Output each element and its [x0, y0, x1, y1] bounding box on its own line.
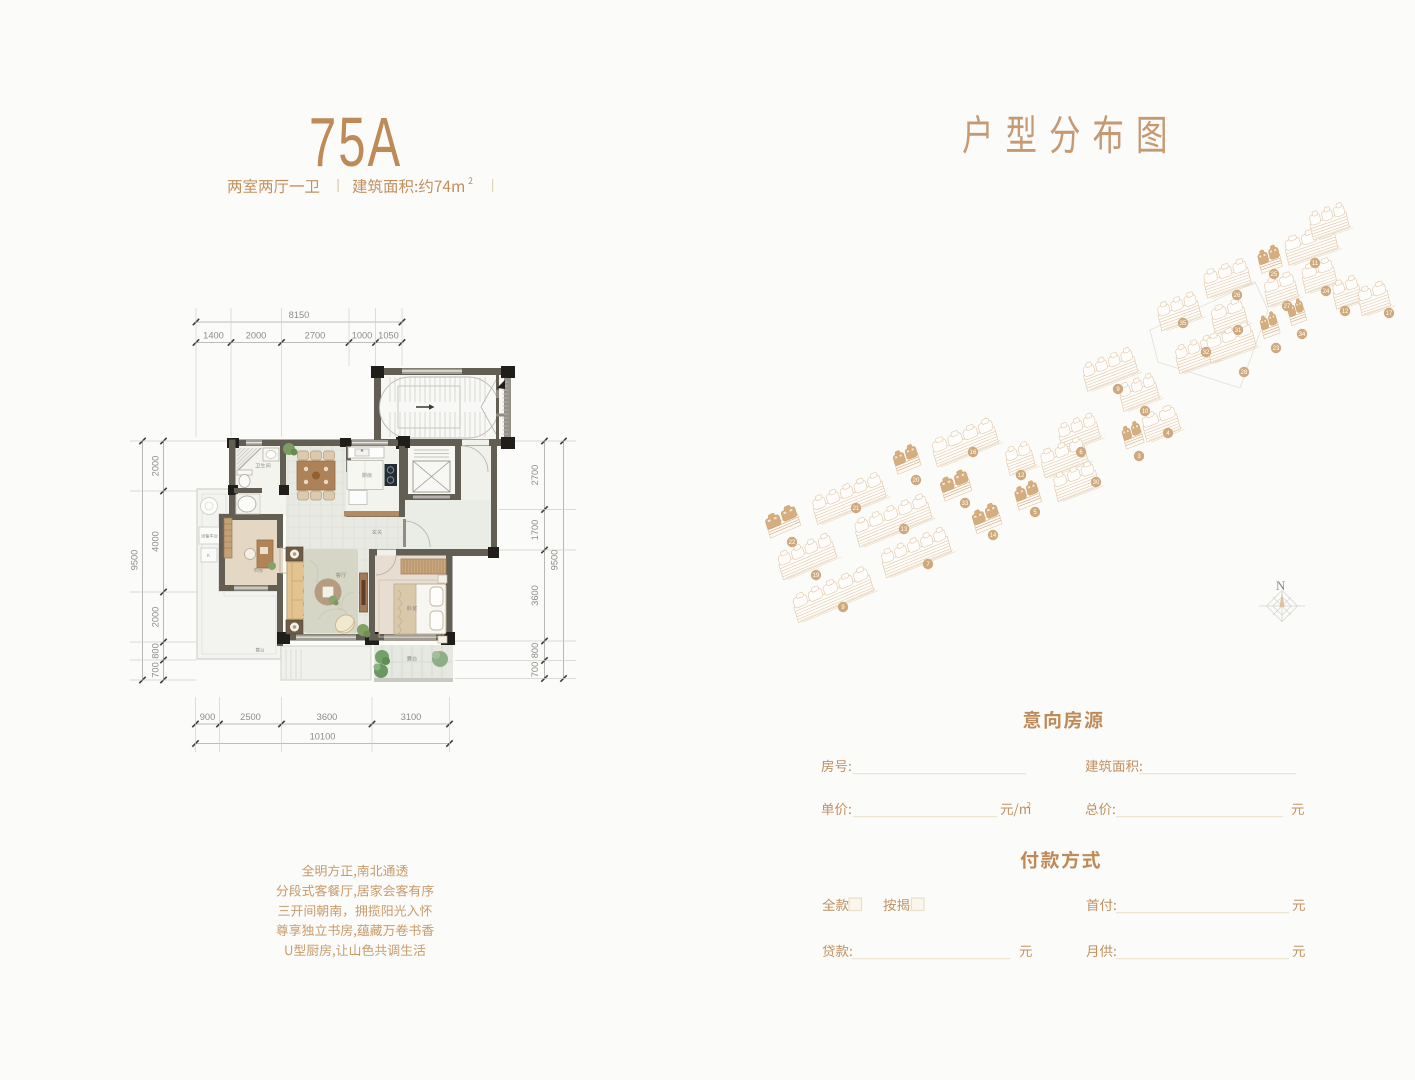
svg-text:12: 12: [1018, 473, 1025, 479]
svg-text:1700: 1700: [530, 520, 540, 541]
svg-text:12: 12: [1342, 309, 1349, 315]
svg-text:23: 23: [1273, 346, 1280, 352]
svg-text:10: 10: [1142, 409, 1149, 415]
svg-text:700: 700: [151, 662, 161, 678]
svg-text:9500: 9500: [550, 550, 560, 571]
svg-text:17: 17: [1386, 311, 1393, 317]
svg-text:32: 32: [1203, 350, 1210, 356]
svg-text:75A: 75A: [309, 104, 402, 181]
svg-text:10100: 10100: [310, 732, 336, 742]
svg-text:2000: 2000: [246, 331, 267, 341]
svg-text:3600: 3600: [530, 585, 540, 606]
svg-text:35: 35: [1180, 321, 1187, 327]
svg-text:800: 800: [151, 643, 161, 659]
svg-text:31: 31: [1235, 328, 1242, 334]
svg-text:13: 13: [901, 527, 908, 533]
svg-text:1050: 1050: [378, 331, 399, 341]
svg-text:1400: 1400: [203, 331, 224, 341]
svg-text:2700: 2700: [305, 331, 326, 341]
svg-text:16: 16: [970, 450, 977, 456]
svg-text:2000: 2000: [151, 607, 161, 628]
svg-text:27: 27: [1284, 304, 1291, 310]
svg-text:1000: 1000: [352, 331, 373, 341]
svg-text:20: 20: [913, 478, 920, 484]
svg-text:700: 700: [530, 662, 540, 678]
svg-text:14: 14: [990, 533, 997, 539]
svg-text:33: 33: [962, 501, 969, 507]
svg-text:800: 800: [530, 643, 540, 659]
svg-text:2000: 2000: [151, 456, 161, 477]
svg-text:25: 25: [1271, 272, 1278, 278]
svg-text:4000: 4000: [151, 531, 161, 552]
svg-text:8150: 8150: [289, 310, 310, 320]
svg-text:21: 21: [853, 506, 860, 512]
svg-text:26: 26: [1234, 293, 1241, 299]
svg-text:3600: 3600: [317, 712, 338, 722]
svg-text:28: 28: [1241, 370, 1248, 376]
svg-text:3100: 3100: [401, 712, 422, 722]
svg-text:24: 24: [1323, 289, 1330, 295]
svg-text:11: 11: [1312, 261, 1319, 267]
svg-text:2700: 2700: [530, 465, 540, 486]
svg-text:30: 30: [1093, 480, 1100, 486]
svg-text:2500: 2500: [240, 712, 261, 722]
svg-text:34: 34: [1299, 332, 1306, 338]
svg-text:N: N: [1276, 578, 1286, 593]
svg-text:22: 22: [789, 540, 796, 546]
svg-text:900: 900: [200, 712, 216, 722]
svg-text:9500: 9500: [130, 550, 140, 571]
svg-text:19: 19: [813, 573, 820, 579]
